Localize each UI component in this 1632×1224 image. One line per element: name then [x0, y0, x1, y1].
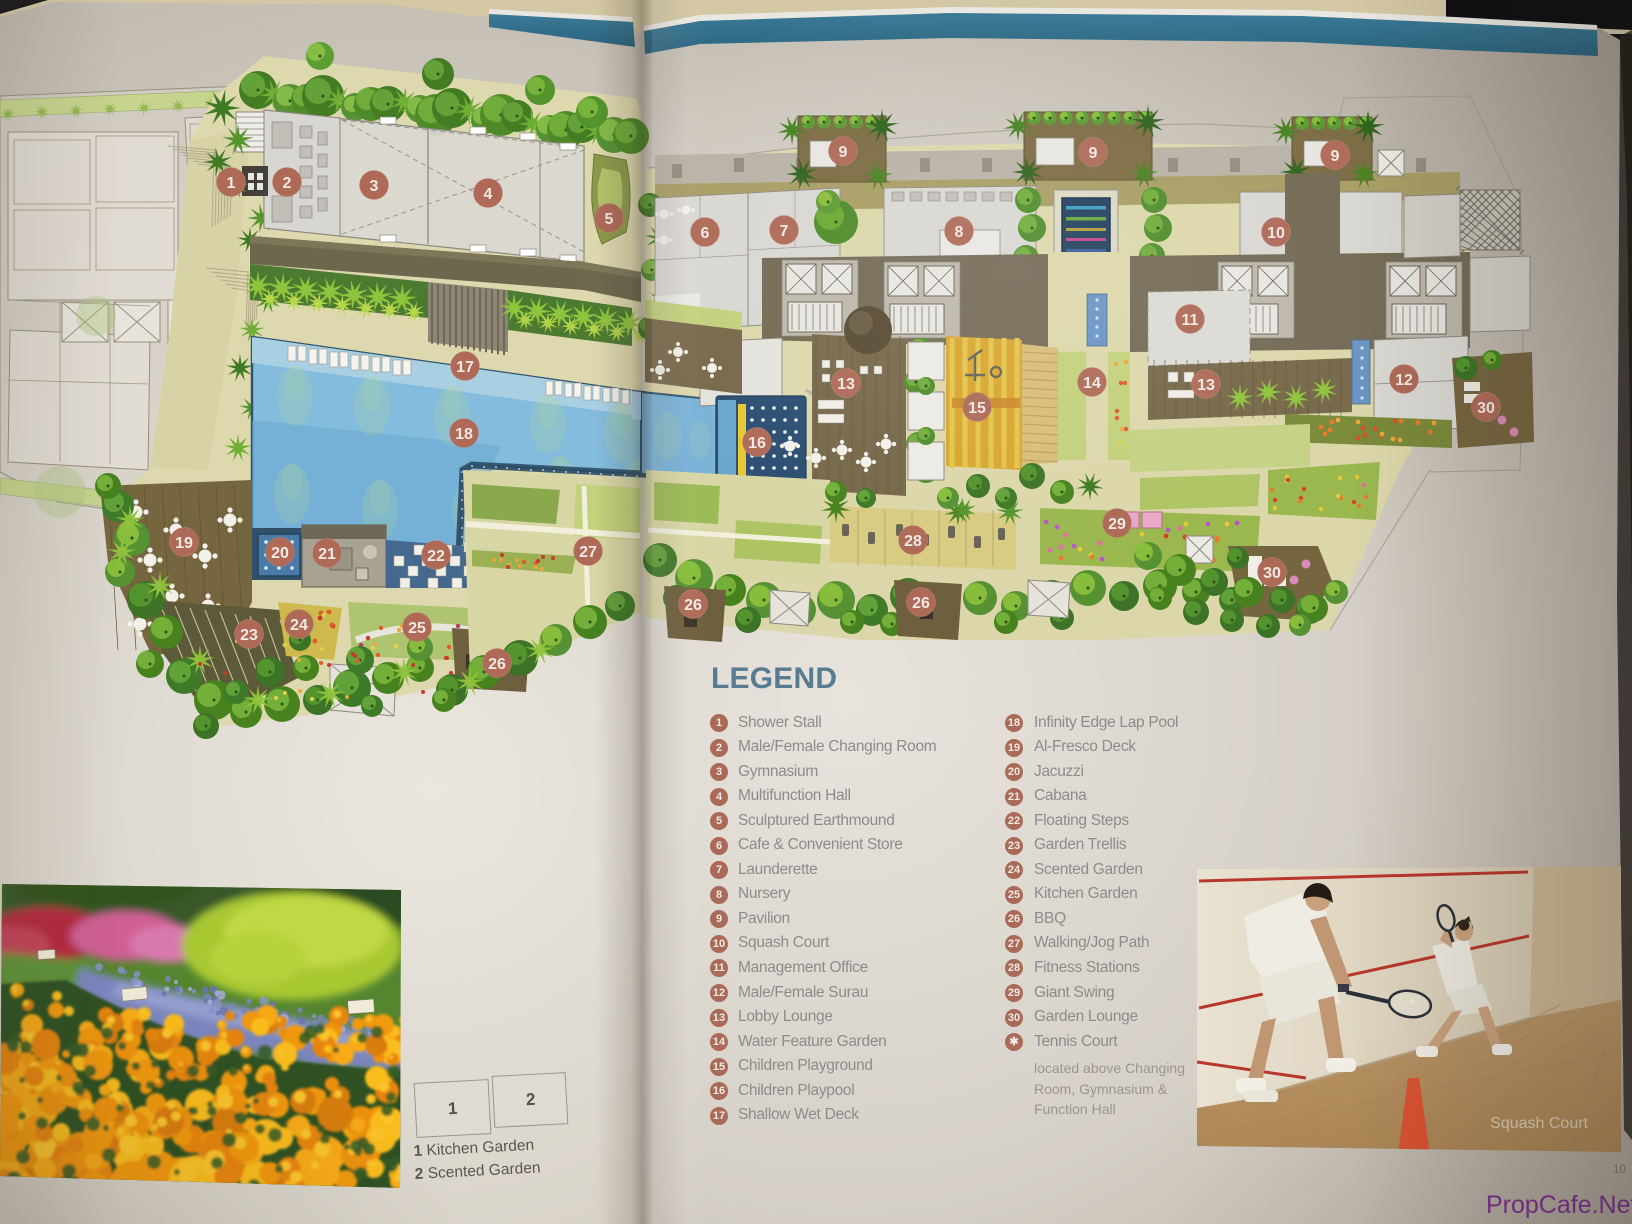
svg-text:Squash Court: Squash Court: [1490, 1115, 1588, 1132]
